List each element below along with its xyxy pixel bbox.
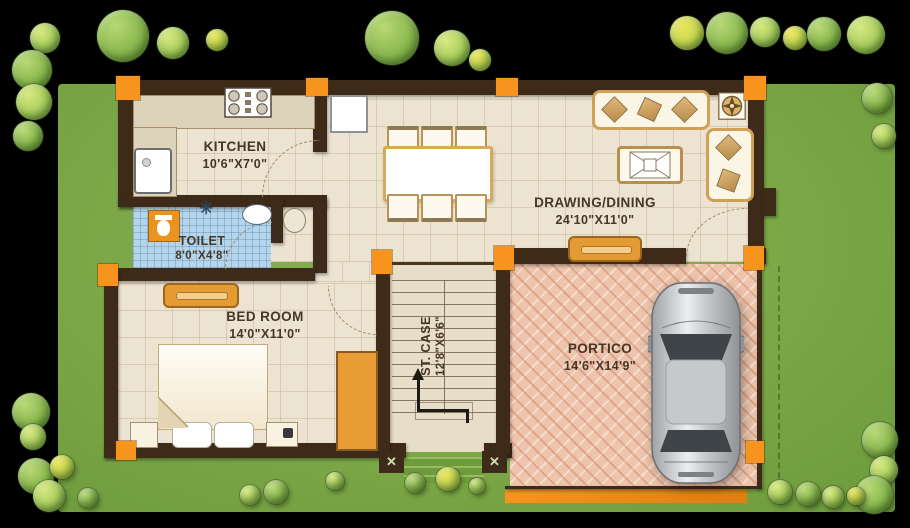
tree bbox=[33, 480, 65, 512]
tree bbox=[862, 422, 898, 458]
tree bbox=[469, 49, 491, 71]
column-marker bbox=[744, 246, 764, 270]
shower-icon: ✳ bbox=[199, 199, 213, 219]
lamp-icon bbox=[283, 428, 293, 438]
tree bbox=[405, 473, 425, 493]
tree bbox=[862, 83, 892, 113]
tree bbox=[783, 26, 807, 50]
room-name: TOILET bbox=[142, 233, 262, 249]
tree bbox=[78, 488, 98, 508]
tree bbox=[807, 17, 841, 51]
nightstand bbox=[266, 422, 298, 447]
tree bbox=[750, 17, 780, 47]
tree bbox=[50, 455, 74, 479]
tree bbox=[20, 424, 46, 450]
sofa-three-seat bbox=[592, 90, 710, 130]
wall bbox=[762, 188, 776, 216]
tree bbox=[768, 480, 792, 504]
column-marker bbox=[116, 441, 136, 460]
room-name: KITCHEN bbox=[155, 138, 315, 156]
shoe-bench bbox=[568, 236, 642, 262]
wall bbox=[104, 268, 315, 281]
driveway-strip bbox=[505, 490, 747, 503]
wall bbox=[376, 260, 390, 452]
sofa-cushion bbox=[637, 97, 662, 122]
tree bbox=[97, 10, 149, 62]
wall bbox=[313, 198, 327, 273]
tree bbox=[13, 121, 43, 151]
room-name: ST. CASE bbox=[418, 281, 434, 411]
bed-blanket-fold bbox=[158, 398, 188, 428]
wall bbox=[271, 198, 283, 243]
stair-direction-line bbox=[466, 409, 469, 423]
bedroom-label: BED ROOM 14'0"X11'0" bbox=[180, 308, 350, 342]
car bbox=[648, 280, 744, 486]
dresser-bench bbox=[163, 283, 239, 308]
dining-chair bbox=[387, 194, 419, 222]
dining-chair bbox=[455, 194, 487, 222]
room-dims: 24'10"X11'0" bbox=[485, 212, 705, 228]
sofa-cushion bbox=[671, 96, 698, 123]
plot-boundary-dashed-line bbox=[778, 266, 782, 498]
column-marker bbox=[744, 76, 766, 100]
tree bbox=[157, 27, 189, 59]
portico-label: PORTICO 14'6"X14'9" bbox=[515, 340, 685, 374]
room-dims: 14'0"X11'0" bbox=[180, 326, 350, 342]
bench-detail bbox=[581, 246, 632, 254]
tree bbox=[206, 29, 228, 51]
sofa-cushion bbox=[715, 134, 742, 161]
refrigerator bbox=[330, 95, 368, 133]
sofa-cushion bbox=[601, 96, 628, 123]
drawing-dining-label: DRAWING/DINING 24'10"X11'0" bbox=[485, 194, 705, 228]
tree bbox=[240, 485, 260, 505]
column-marker bbox=[496, 78, 518, 96]
column-x-marker: ✕ bbox=[379, 451, 404, 473]
tree bbox=[469, 478, 485, 494]
washbasin bbox=[283, 208, 306, 233]
room-dims: 12'8"X6'6" bbox=[434, 281, 449, 411]
washbasin bbox=[242, 204, 272, 225]
staircase-label: ST. CASE 12'8"X6'6" bbox=[418, 281, 458, 411]
tree bbox=[847, 487, 865, 505]
column-marker bbox=[372, 250, 392, 274]
tree bbox=[16, 84, 52, 120]
room-dims: 14'6"X14'9" bbox=[515, 358, 685, 374]
tree bbox=[822, 486, 844, 508]
toilet-label: TOILET 8'0"X4'8" bbox=[142, 233, 262, 264]
pillow bbox=[214, 422, 254, 448]
tree bbox=[365, 11, 419, 65]
tree bbox=[434, 30, 470, 66]
tree bbox=[872, 124, 896, 148]
column-marker bbox=[98, 264, 118, 286]
column-marker bbox=[746, 441, 764, 463]
wall bbox=[505, 486, 762, 489]
kitchen-label: KITCHEN 10'6"X7'0" bbox=[155, 138, 315, 172]
floor-plan: ✳ ✕ ✕ KITCHEN 10'6"X7'0" bbox=[0, 0, 910, 528]
tree bbox=[326, 472, 344, 490]
tree bbox=[796, 482, 820, 506]
tree bbox=[264, 480, 288, 504]
tree bbox=[706, 12, 748, 54]
room-name: BED ROOM bbox=[180, 308, 350, 326]
tree bbox=[30, 23, 60, 53]
room-name: PORTICO bbox=[515, 340, 685, 358]
wall bbox=[496, 255, 510, 455]
sofa-two-seat bbox=[706, 128, 754, 202]
column-marker bbox=[306, 78, 328, 96]
bench-detail bbox=[176, 292, 228, 300]
wardrobe bbox=[336, 351, 378, 451]
room-dims: 10'6"X7'0" bbox=[155, 156, 315, 172]
room-dims: 8'0"X4'8" bbox=[142, 249, 262, 264]
coffee-table bbox=[617, 146, 683, 184]
x-glyph: ✕ bbox=[489, 454, 500, 470]
x-glyph: ✕ bbox=[386, 454, 397, 470]
sofa-cushion bbox=[716, 168, 740, 192]
stair-top-line bbox=[390, 262, 496, 265]
tree bbox=[670, 16, 704, 50]
tree bbox=[847, 16, 885, 54]
dining-chair bbox=[421, 194, 453, 222]
room-name: DRAWING/DINING bbox=[485, 194, 705, 212]
wall bbox=[104, 268, 118, 458]
column-marker bbox=[116, 76, 140, 100]
stove bbox=[224, 87, 272, 118]
tree bbox=[436, 467, 460, 491]
column-marker bbox=[494, 246, 514, 270]
compass-icon bbox=[718, 92, 746, 120]
column-x-marker: ✕ bbox=[482, 451, 507, 473]
